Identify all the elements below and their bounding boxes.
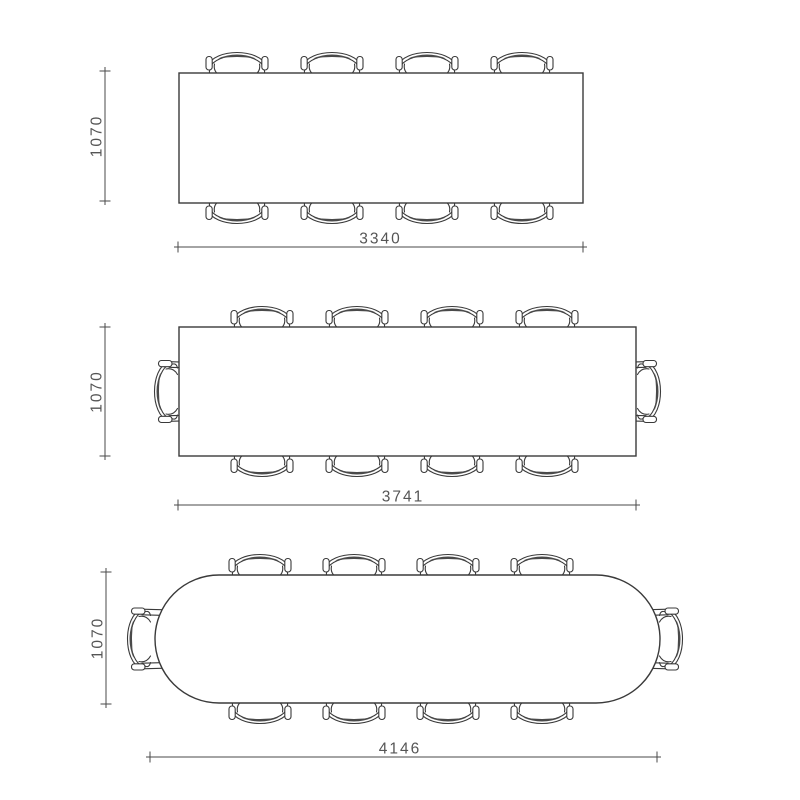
- chair-icon: [326, 307, 388, 330]
- chair-icon: [516, 307, 578, 330]
- chair-icon: [229, 701, 291, 724]
- chair-icon: [206, 53, 268, 76]
- width-dimension: 4146: [146, 741, 661, 763]
- chair-icon: [511, 555, 573, 578]
- width-dimension-label: 3340: [359, 231, 401, 248]
- chair-row-bottom: [206, 201, 553, 224]
- chair-icon: [491, 201, 553, 224]
- furniture-dimension-diagram: 1070 3340 1070 3741: [0, 0, 800, 800]
- chair-icon: [326, 454, 388, 477]
- height-dimension-label: 1070: [90, 617, 107, 659]
- table-surface: [179, 73, 583, 203]
- chair-icon: [516, 454, 578, 477]
- height-dimension-label: 1070: [89, 115, 106, 157]
- table-plan-view-1: 1070 3340: [89, 53, 588, 253]
- width-dimension-label: 3741: [382, 489, 424, 506]
- width-dimension: 3340: [174, 231, 587, 253]
- height-dimension-label: 1070: [89, 370, 106, 412]
- width-dimension: 3741: [174, 489, 640, 511]
- width-dimension-label: 4146: [379, 741, 421, 758]
- chair-icon: [396, 201, 458, 224]
- chair-icon: [301, 53, 363, 76]
- chair-icon: [491, 53, 553, 76]
- chair-row-top: [231, 307, 578, 330]
- table-surface: [179, 327, 636, 456]
- table-plan-view-2: 1070 3741: [89, 307, 661, 511]
- chair-icon: [206, 201, 268, 224]
- chair-icon: [301, 201, 363, 224]
- chair-row-top: [229, 555, 573, 578]
- height-dimension: 1070: [89, 323, 111, 460]
- chair-row-top: [206, 53, 553, 76]
- chair-icon: [323, 555, 385, 578]
- chair-icon: [417, 555, 479, 578]
- chair-icon: [417, 701, 479, 724]
- dimension-diagram-page: 1070 3340 1070 3741: [0, 0, 800, 800]
- chair-icon: [421, 307, 483, 330]
- chair-icon: [511, 701, 573, 724]
- height-dimension: 1070: [89, 67, 111, 205]
- chair-icon: [323, 701, 385, 724]
- chair-icon: [396, 53, 458, 76]
- chair-row-bottom: [229, 701, 573, 724]
- table-surface: [155, 575, 660, 703]
- height-dimension: 1070: [90, 568, 112, 708]
- chair-icon: [231, 454, 293, 477]
- chair-icon: [229, 555, 291, 578]
- chair-icon: [231, 307, 293, 330]
- chair-row-bottom: [231, 454, 578, 477]
- table-plan-view-3: 1070 4146: [90, 555, 683, 763]
- chair-icon: [421, 454, 483, 477]
